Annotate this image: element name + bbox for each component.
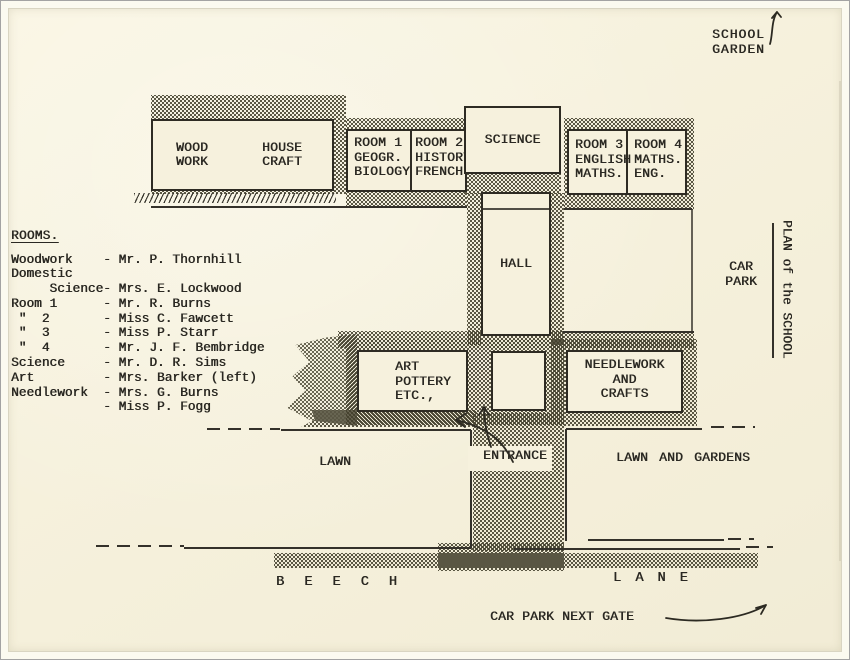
scan-edge-shading: [839, 81, 845, 561]
woodwork-housecraft-box: WOODWORK HOUSECRAFT: [151, 119, 334, 191]
science-box: SCIENCE: [464, 106, 561, 174]
lawn-bottom-line: [184, 547, 471, 549]
room1-label: ROOM 1GEOGR.BIOLOGY: [348, 131, 410, 190]
lawn-top-dashes: [207, 428, 280, 430]
gardens-left-line: [565, 429, 567, 541]
right-courtyard-top-line: [564, 208, 692, 210]
legend-line: " 2 - Miss C. Fawcett: [11, 312, 264, 327]
woodwork-label: WOODWORK: [176, 141, 208, 170]
car-park-next-gate-label: CAR PARK NEXT GATE: [490, 610, 634, 625]
plan-title-rule: [772, 223, 774, 358]
gardens-top-line: [566, 428, 702, 430]
lane-line-east: [514, 548, 740, 550]
school-plan-scan: WOODWORK HOUSECRAFT ROOM 1GEOGR.BIOLOGY …: [0, 0, 850, 660]
entrance-label: ENTRANCE: [468, 446, 552, 464]
legend-line: Science- Mrs. E. Lockwood: [11, 282, 264, 297]
legend-line: - Miss P. Fogg: [11, 400, 264, 415]
gardens-bottom-line: [588, 539, 724, 541]
art-pottery-label: ARTPOTTERYETC.,: [359, 352, 466, 404]
room4-label: ROOM 4MATHS.ENG.: [626, 131, 685, 193]
lawn-top-line: [281, 429, 471, 431]
needlework-box: NEEDLEWORKANDCRAFTS: [566, 350, 683, 413]
legend-line: " 3 - Miss P. Starr: [11, 326, 264, 341]
right-courtyard-right-line: [691, 209, 693, 333]
legend-line: Science - Mr. D. R. Sims: [11, 356, 264, 371]
corridor-left-of-hall: [467, 193, 481, 345]
hatch-strip: [134, 193, 336, 203]
rooms-legend: ROOMS. Woodwork - Mr. P. Thornhill Domes…: [11, 229, 264, 415]
lawn-label: LAWN: [319, 455, 351, 470]
beech-label: B E E C H: [276, 576, 403, 591]
school-garden-label: SCHOOLGARDEN: [712, 28, 765, 57]
housecraft-label: HOUSECRAFT: [262, 141, 302, 170]
art-pottery-box: ARTPOTTERYETC.,: [357, 350, 468, 412]
room2-label: ROOM 2HISTORYFRENCH: [410, 131, 471, 190]
hall-box: HALL: [481, 192, 551, 336]
lawn-and-gardens-label: LAWN AND GARDENS: [616, 451, 750, 466]
room3-label: ROOM 3ENGLISHMATHS.: [569, 131, 626, 193]
legend-line: " 4 - Mr. J. F. Bembridge: [11, 341, 264, 356]
car-park-label: CARPARK: [721, 260, 761, 289]
hall-label: HALL: [500, 257, 532, 272]
needlework-label: NEEDLEWORKANDCRAFTS: [568, 352, 681, 402]
right-courtyard-bottom-line: [563, 331, 694, 333]
plan-title-vertical: PLAN of the SCHOOL: [779, 219, 794, 359]
corridor-right-of-hall: [551, 193, 564, 345]
lawn-bottom-dashes: [96, 545, 184, 547]
lane-line-end-dashes: [746, 546, 773, 548]
hall-stage-line: [483, 208, 549, 210]
gardens-bottom-dashes: [728, 538, 754, 540]
gardens-top-dashes: [711, 426, 755, 428]
science-label: SCIENCE: [484, 133, 540, 148]
car-park-gate-arrow: [666, 605, 766, 620]
entrance-path: [473, 413, 564, 551]
unlabeled-room-box: [491, 351, 546, 411]
north-block-baseline: [151, 206, 467, 208]
corridor-under-science: [464, 174, 561, 194]
rooms-legend-heading: ROOMS.: [11, 229, 264, 244]
school-garden-arrow: [770, 12, 781, 44]
legend-line: Needlework - Mrs. G. Burns: [11, 386, 264, 401]
legend-line: Domestic: [11, 267, 264, 282]
legend-line: Woodwork - Mr. P. Thornhill: [11, 253, 264, 268]
corridor-to-entrance: [301, 410, 476, 427]
rooms-3-4-box: ROOM 3ENGLISHMATHS. ROOM 4MATHS.ENG.: [567, 129, 687, 195]
rooms-1-2-box: ROOM 1GEOGR.BIOLOGY ROOM 2HISTORYFRENCH: [346, 129, 467, 192]
legend-line: Art - Mrs. Barker (left): [11, 371, 264, 386]
legend-line: Room 1 - Mr. R. Burns: [11, 297, 264, 312]
lane-label: L A N E: [613, 572, 691, 587]
entrance-label-patch: ENTRANCE: [468, 446, 552, 471]
rooms-legend-lines: Woodwork - Mr. P. Thornhill Domestic Sci…: [11, 253, 264, 416]
